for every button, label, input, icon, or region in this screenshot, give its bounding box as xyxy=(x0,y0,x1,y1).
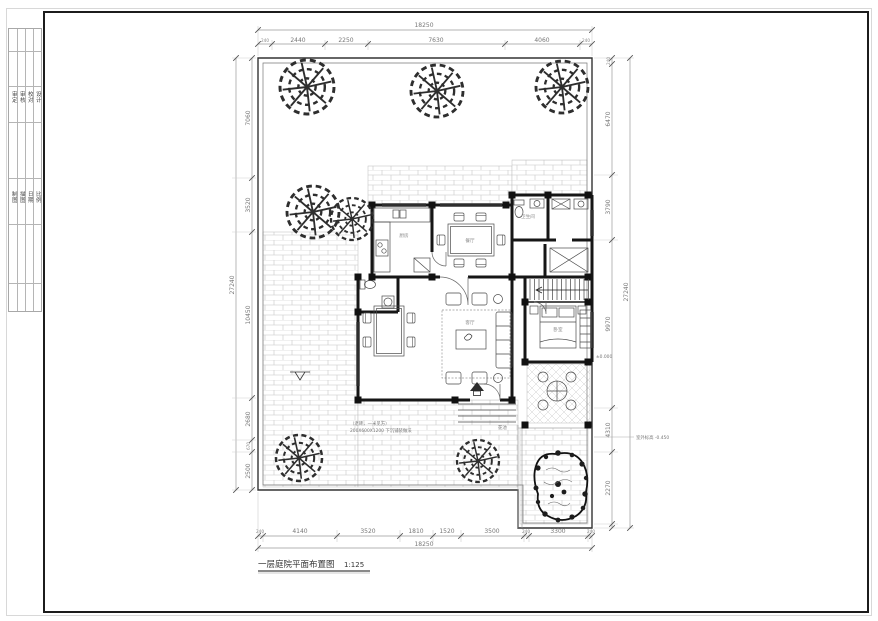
room-label-bath: 卫生间 xyxy=(521,213,535,220)
room-label-dining: 餐厅 xyxy=(465,237,475,244)
dim-seg: 240 xyxy=(587,529,595,534)
dim-seg: 3500 xyxy=(484,528,499,535)
dim-seg: 3520 xyxy=(360,528,375,535)
dimension-text-right: 240 6470 3790 9970 4310 2270 27240 xyxy=(605,57,630,496)
dim-seg: 7630 xyxy=(428,37,443,44)
tree-icon xyxy=(411,65,463,117)
dim-seg: 10450 xyxy=(245,305,252,324)
dim-seg: 3520 xyxy=(245,197,252,212)
drawing-title-text: 一层庭院平面布置图 xyxy=(258,559,335,570)
indoor-level-label: ±0.000 xyxy=(596,354,612,360)
dim-seg: 6470 xyxy=(605,111,612,126)
dim-seg: 1520 xyxy=(439,528,454,535)
dim-seg: 9970 xyxy=(605,316,612,331)
dim-overall-top: 18250 xyxy=(414,22,433,29)
dimension-text-top: 18250 240 2440 2250 7630 4060 240 xyxy=(261,22,590,44)
dim-seg: 2440 xyxy=(290,37,305,44)
paving-note-line1: （老砖，一米见方） xyxy=(350,420,390,427)
dim-seg: 3790 xyxy=(605,199,612,214)
dim-seg: 670 xyxy=(246,442,251,450)
dim-overall-bottom: 18250 xyxy=(414,541,433,548)
dim-overall-right: 27240 xyxy=(623,282,630,301)
tree-icon xyxy=(280,60,334,114)
dim-seg: 240 xyxy=(582,38,590,43)
planter-label: 花池 xyxy=(498,424,507,431)
dim-seg: 4140 xyxy=(292,528,307,535)
dim-seg: 3300 xyxy=(550,528,565,535)
sofa-set xyxy=(442,293,512,384)
dim-seg: 240 xyxy=(606,57,611,65)
dim-seg: 1810 xyxy=(408,528,423,535)
dim-seg: 2250 xyxy=(338,37,353,44)
dim-seg: 240 xyxy=(261,38,269,43)
outdoor-level-label: 室外标高 -0.450 xyxy=(636,434,669,441)
dim-seg: 2500 xyxy=(245,463,252,478)
drawing-title: 一层庭院平面布置图 1:125 xyxy=(258,559,370,573)
room-labels: 厨房 餐厅 客厅 卧室 卫生间 xyxy=(399,213,563,333)
paving-note-line2: 200X600X1200 下沉铺装做法 xyxy=(350,427,412,434)
drawing-sheet: 审定 审核 校对 设计 制图 描图 日期 比例 xyxy=(0,0,878,621)
bedroom-furniture xyxy=(530,306,591,348)
dim-overall-left: 27240 xyxy=(229,275,236,294)
tree-icon xyxy=(536,61,588,113)
dim-seg: 4060 xyxy=(534,37,549,44)
terrace-paving xyxy=(527,364,590,423)
dim-seg: 240 xyxy=(256,529,264,534)
dim-seg: 240 xyxy=(522,529,530,534)
dimension-text-bottom: 240 4140 3520 1810 1520 3500 240 3300 24… xyxy=(256,528,595,548)
kitchen-counter xyxy=(374,208,430,272)
dim-seg: 2680 xyxy=(245,411,252,426)
staircase xyxy=(530,279,589,300)
windows xyxy=(357,204,594,387)
dim-seg: 2270 xyxy=(605,480,612,495)
room-label-living: 客厅 xyxy=(465,319,475,326)
dimension-text-left: 7060 3520 10450 2680 670 2500 27240 xyxy=(229,110,252,478)
tree-icon xyxy=(331,198,373,240)
drawing-scale-text: 1:125 xyxy=(344,561,364,569)
left-bathroom xyxy=(360,280,394,308)
dim-seg: 7060 xyxy=(245,110,252,125)
floor-plan-drawing: 18250 240 2440 2250 7630 4060 240 240 41… xyxy=(0,0,878,621)
room-label-bedroom: 卧室 xyxy=(553,326,563,333)
dim-seg: 4310 xyxy=(605,422,612,437)
room-label-kitchen: 厨房 xyxy=(399,232,409,239)
